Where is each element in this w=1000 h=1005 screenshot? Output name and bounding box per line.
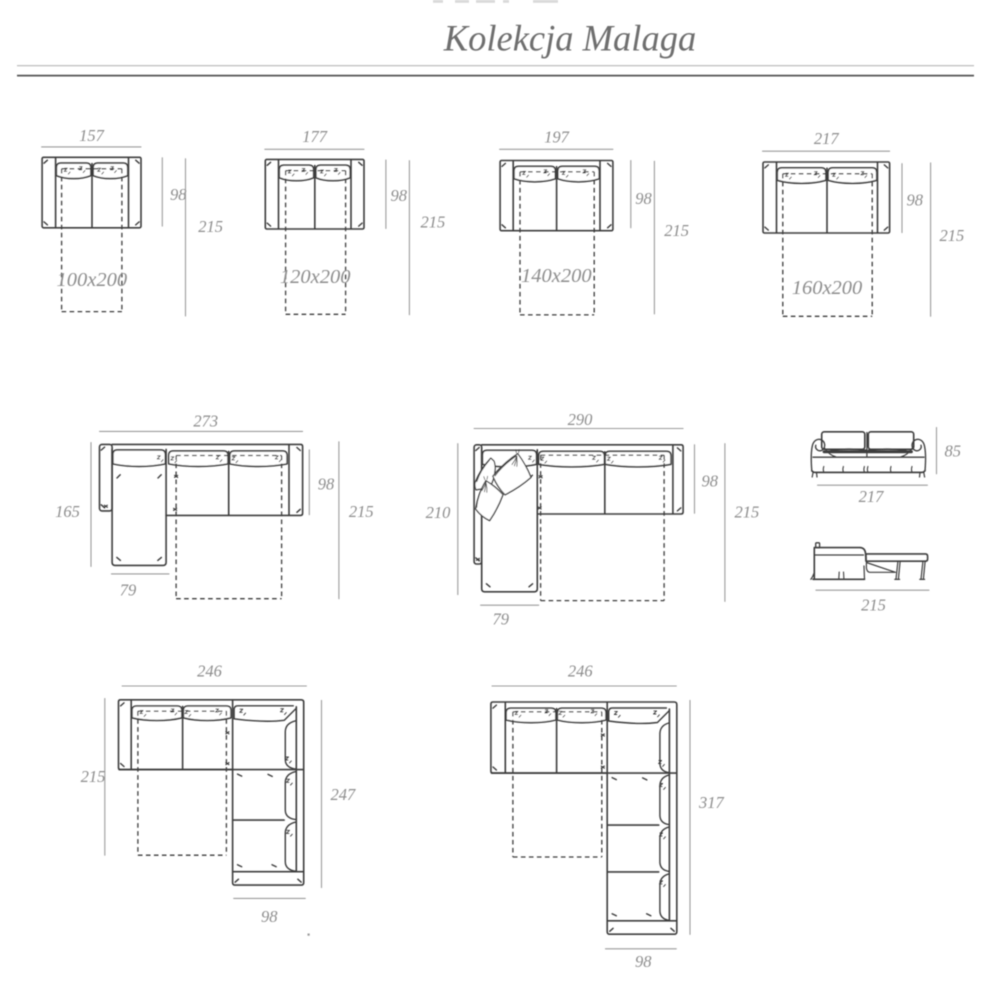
svg-text:273: 273 — [193, 412, 218, 431]
svg-text:215: 215 — [421, 213, 446, 232]
svg-text:246: 246 — [568, 662, 594, 681]
svg-text:98: 98 — [261, 907, 278, 926]
svg-text:85: 85 — [945, 442, 962, 461]
svg-text:98: 98 — [170, 185, 187, 204]
svg-text:98: 98 — [391, 186, 408, 205]
svg-text:100x200: 100x200 — [56, 269, 127, 291]
svg-text:98: 98 — [702, 472, 719, 491]
svg-text:120x200: 120x200 — [280, 266, 351, 288]
svg-text:215: 215 — [81, 767, 106, 786]
svg-text:98: 98 — [635, 952, 652, 971]
svg-text:215: 215 — [940, 226, 965, 245]
svg-text:157: 157 — [79, 126, 105, 145]
svg-text:215: 215 — [349, 502, 374, 521]
svg-text:Kolekcja Malaga: Kolekcja Malaga — [443, 18, 696, 59]
svg-text:246: 246 — [197, 662, 223, 681]
svg-text:140x200: 140x200 — [521, 265, 592, 287]
svg-text:79: 79 — [493, 610, 510, 629]
svg-text:177: 177 — [302, 127, 328, 146]
svg-text:290: 290 — [568, 410, 594, 429]
svg-text:217: 217 — [859, 487, 885, 506]
svg-text:160x200: 160x200 — [792, 277, 863, 299]
svg-text:247: 247 — [331, 785, 357, 804]
svg-text:98: 98 — [318, 475, 335, 494]
svg-text:165: 165 — [55, 502, 80, 521]
svg-text:210: 210 — [426, 503, 452, 522]
svg-text:317: 317 — [698, 793, 725, 812]
svg-text:217: 217 — [814, 129, 840, 148]
svg-text:197: 197 — [544, 128, 570, 147]
svg-text:98: 98 — [907, 191, 924, 210]
svg-text:215: 215 — [198, 217, 223, 236]
svg-text:215: 215 — [664, 221, 689, 240]
svg-text:215: 215 — [861, 596, 886, 615]
svg-text:98: 98 — [635, 189, 652, 208]
svg-text:215: 215 — [735, 503, 760, 522]
svg-text:79: 79 — [120, 581, 137, 600]
